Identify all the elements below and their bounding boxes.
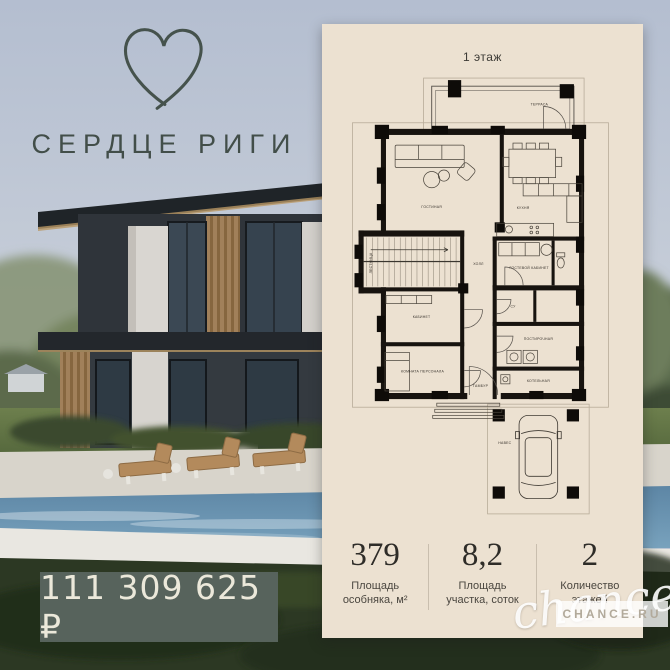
- room-label-stairs: ЛЕСТНИЦА: [369, 252, 373, 273]
- house-illustration: [38, 182, 338, 449]
- project-title: СЕРДЦЕ РИГИ: [0, 129, 322, 160]
- overhang-outlines: [352, 78, 608, 514]
- floorplan-panel: 1 этаж: [322, 24, 643, 638]
- room-label-hall: ХОЛЛ: [473, 262, 483, 266]
- listing-poster: СЕРДЦЕ РИГИ 111 309 625 ₽ 1 этаж: [0, 0, 670, 670]
- stat-lot-area-label-1: Площадь: [429, 579, 535, 593]
- stat-lot-area-label-2: участка, соток: [429, 593, 535, 607]
- room-label-living: ГОСТИНАЯ: [421, 205, 442, 209]
- brand-block: СЕРДЦЕ РИГИ: [0, 0, 322, 160]
- stat-house-area-label-2: особняка, м²: [322, 593, 428, 607]
- floorplan-drawing: ТЕРРАСА ГОСТИНАЯ КУХНЯ ГОСТЕВОЙ КАБИНЕТ …: [330, 74, 635, 521]
- walls: [359, 129, 585, 399]
- stat-house-area: 379 Площадь особняка, м²: [322, 530, 428, 630]
- door-swings: [464, 107, 566, 396]
- room-label-laundry: ПОСТИРОЧНАЯ: [524, 337, 554, 341]
- room-label-guest-cabinet: ГОСТЕВОЙ КАБИНЕТ: [510, 266, 550, 270]
- room-label-staff-room: КОМНАТА ПЕРСОНАЛА: [401, 370, 445, 374]
- watermark-logo: CHANCE.RU: [556, 601, 668, 627]
- room-label-boiler: КОТЕЛЬНАЯ: [527, 379, 550, 383]
- stat-lot-area: 8,2 Площадь участка, соток: [429, 530, 535, 630]
- room-label-carport: НАВЕС: [498, 441, 511, 445]
- price-value: 111 309 625 ₽: [40, 568, 278, 646]
- price-badge: 111 309 625 ₽: [40, 572, 278, 642]
- stat-lot-area-value: 8,2: [429, 538, 535, 573]
- room-label-vestibule: ТАМБУР: [473, 384, 489, 388]
- heart-outline-icon: [107, 20, 215, 116]
- car: [516, 415, 562, 498]
- stat-floors-value: 2: [537, 538, 643, 573]
- stat-house-area-value: 379: [322, 538, 428, 573]
- staircase: [364, 238, 461, 287]
- room-label-kitchen: КУХНЯ: [517, 206, 530, 210]
- room-label-office: КАБИНЕТ: [413, 315, 431, 319]
- room-label-terrace: ТЕРРАСА: [531, 102, 549, 106]
- stat-house-area-label-1: Площадь: [322, 579, 428, 593]
- stat-floors-label-1: Количество: [537, 579, 643, 593]
- room-label-wc: СУ: [510, 305, 516, 309]
- floor-title: 1 этаж: [322, 50, 643, 64]
